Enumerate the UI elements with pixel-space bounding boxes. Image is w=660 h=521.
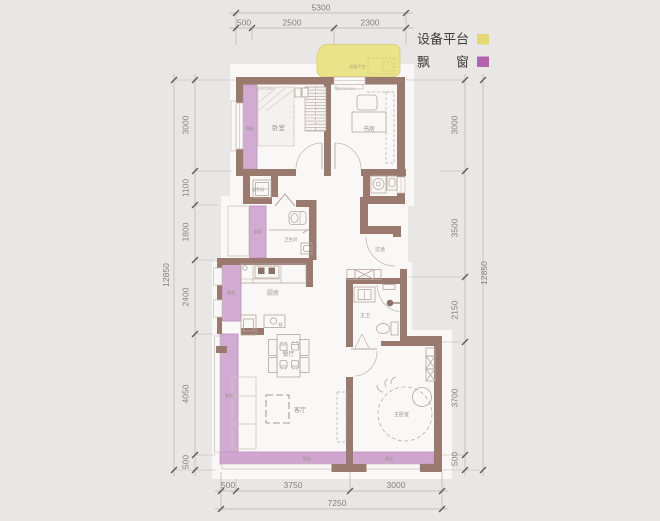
svg-text:卧室2400*3300: 卧室2400*3300	[252, 86, 274, 91]
svg-text:12850: 12850	[161, 263, 171, 287]
svg-text:飘窗: 飘窗	[303, 455, 311, 461]
svg-text:飘: 飘	[417, 55, 430, 70]
svg-text:厨房: 厨房	[267, 289, 279, 297]
svg-text:书房: 书房	[363, 125, 375, 133]
svg-text:洗手间: 洗手间	[252, 186, 264, 192]
svg-text:卫生间: 卫生间	[284, 236, 298, 243]
svg-text:2500: 2500	[283, 18, 302, 28]
svg-text:2150: 2150	[450, 300, 460, 319]
svg-text:飘窗: 飘窗	[225, 392, 233, 398]
svg-text:主卧室: 主卧室	[394, 411, 409, 418]
svg-text:主卫: 主卫	[360, 312, 370, 319]
svg-text:1800: 1800	[181, 222, 191, 241]
svg-text:书房2300*2800: 书房2300*2800	[334, 86, 356, 91]
svg-text:12850: 12850	[479, 261, 489, 285]
svg-text:飘窗: 飘窗	[385, 455, 393, 461]
svg-text:3750: 3750	[284, 480, 303, 490]
svg-text:500: 500	[221, 480, 235, 490]
svg-text:餐厅: 餐厅	[283, 350, 295, 358]
svg-text:5300: 5300	[312, 3, 331, 13]
svg-text:设备平台: 设备平台	[417, 32, 469, 47]
svg-text:2300: 2300	[361, 18, 380, 28]
svg-text:500: 500	[237, 18, 251, 28]
svg-text:3000: 3000	[181, 115, 191, 134]
svg-text:飘窗: 飘窗	[227, 289, 235, 295]
svg-text:500: 500	[450, 452, 460, 466]
svg-text:过道: 过道	[375, 246, 385, 253]
svg-text:3500: 3500	[450, 218, 460, 237]
svg-text:3700: 3700	[450, 388, 460, 407]
svg-text:飘窗: 飘窗	[246, 125, 254, 131]
svg-text:2400: 2400	[181, 287, 191, 306]
svg-text:3000: 3000	[450, 115, 460, 134]
svg-text:1100: 1100	[181, 179, 191, 198]
svg-text:7250: 7250	[328, 498, 347, 508]
svg-text:500: 500	[181, 455, 191, 469]
svg-text:客厅: 客厅	[294, 406, 306, 414]
svg-text:设备平台: 设备平台	[349, 63, 366, 70]
svg-text:4050: 4050	[181, 384, 191, 403]
svg-text:卧室: 卧室	[272, 123, 286, 132]
svg-text:飘窗: 飘窗	[254, 228, 262, 234]
svg-text:3000: 3000	[387, 480, 406, 490]
svg-text:窗: 窗	[456, 55, 469, 70]
